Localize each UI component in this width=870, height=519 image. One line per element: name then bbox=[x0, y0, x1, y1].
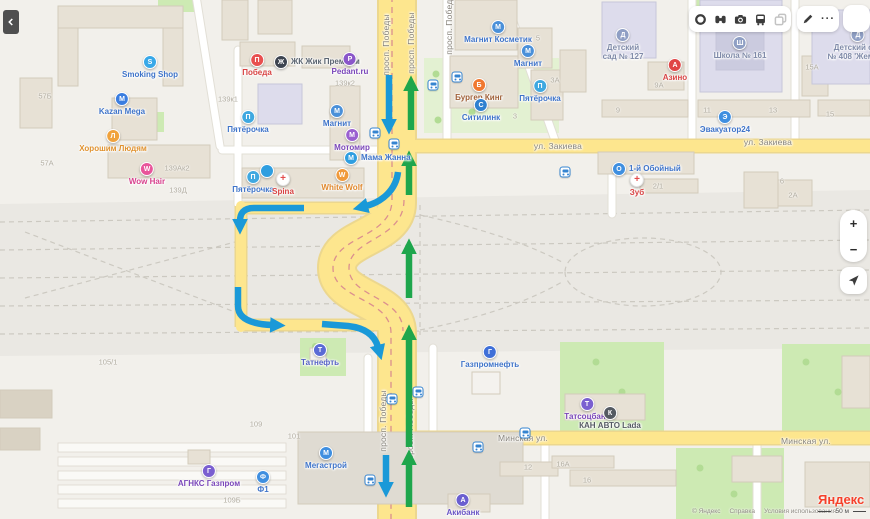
poi-icon: Т bbox=[313, 343, 327, 357]
poi-marker[interactable]: Г Газпромнефть bbox=[461, 345, 519, 369]
poi-marker[interactable]: М Магнит Косметик bbox=[464, 20, 532, 44]
camera-icon bbox=[734, 13, 747, 26]
poi-icon: Ф bbox=[256, 470, 270, 484]
street-label: ул. Закиева bbox=[744, 137, 792, 147]
tools-toolbar: ··· bbox=[797, 6, 839, 32]
poi-icon: А bbox=[456, 493, 470, 507]
poi-marker[interactable]: Ф Ф1 bbox=[256, 470, 270, 494]
poi-marker[interactable]: А Азино bbox=[663, 58, 687, 82]
map-canvas[interactable]: просп. Победыпросп. Победыпросп. Победып… bbox=[0, 0, 870, 519]
poi-label: Spina bbox=[272, 187, 294, 196]
poi-marker[interactable]: W Wow Hair bbox=[129, 162, 165, 186]
street-label: просп. Победы bbox=[444, 0, 454, 55]
poi-icon: М bbox=[344, 151, 358, 165]
poi-label: КАН АВТО Lada bbox=[579, 421, 641, 430]
poi-icon: Д bbox=[616, 28, 630, 42]
building-number: 3 bbox=[513, 112, 517, 121]
location-arrow-icon bbox=[847, 274, 860, 287]
building-number: 139Ак2 bbox=[165, 164, 190, 173]
building-number: 15А bbox=[805, 63, 818, 72]
scale-line-right bbox=[853, 511, 866, 512]
building-number: 13 bbox=[769, 106, 777, 115]
bus-stop-icon[interactable] bbox=[428, 80, 439, 91]
poi-icon: S bbox=[143, 55, 157, 69]
poi-marker[interactable]: Т Татнефть bbox=[301, 343, 339, 367]
poi-icon: Ш bbox=[733, 36, 747, 50]
ruler-button[interactable] bbox=[799, 8, 817, 30]
poi-marker[interactable]: К КАН АВТО Lada bbox=[579, 406, 641, 430]
poi-label: Хорошим Людям bbox=[79, 144, 147, 153]
building-number: 5 bbox=[536, 34, 540, 43]
building-number: 139к2 bbox=[335, 79, 355, 88]
poi-icon: К bbox=[603, 406, 617, 420]
poi-label: White Wolf bbox=[321, 183, 362, 192]
poi-label: Победа bbox=[242, 68, 272, 77]
pencil-icon bbox=[802, 13, 814, 25]
poi-label: Азино bbox=[663, 73, 687, 82]
poi-icon: W bbox=[140, 162, 154, 176]
poi-marker[interactable]: М Мегастрой bbox=[305, 446, 347, 470]
poi-icon: С bbox=[474, 98, 488, 112]
poi-icon: М bbox=[319, 446, 333, 460]
map-layers-toolbar bbox=[689, 6, 791, 32]
poi-icon bbox=[260, 164, 274, 178]
poi-icon: П bbox=[246, 170, 260, 184]
building-number: 139к1 bbox=[218, 95, 238, 104]
poi-marker[interactable]: А Акибанк bbox=[447, 493, 480, 517]
building-number: 15 bbox=[826, 110, 834, 119]
attribution-bar: © Яндекс Справка Условия использования bbox=[692, 508, 836, 515]
poi-marker[interactable]: Э Эвакуатор24 bbox=[700, 110, 750, 134]
more-button[interactable]: ··· bbox=[819, 8, 837, 30]
building-number: 16 bbox=[583, 476, 591, 485]
zoom-controls: + − bbox=[840, 210, 867, 262]
poi-icon: Г bbox=[483, 345, 497, 359]
bus-icon bbox=[754, 13, 767, 26]
poi-label: АГНКС Газпром bbox=[178, 479, 240, 488]
poi-label: Ситилинк bbox=[462, 113, 500, 122]
street-label: просп. Победы bbox=[406, 12, 416, 73]
poi-label: Магнит bbox=[514, 59, 542, 68]
building-number: 57Б bbox=[38, 92, 51, 101]
bus-stop-icon[interactable] bbox=[473, 442, 484, 453]
poi-label: Пятёрочка bbox=[227, 125, 268, 134]
building-number: 2/1 bbox=[653, 182, 663, 191]
poi-marker[interactable]: P Pedant.ru bbox=[332, 52, 369, 76]
poi-marker[interactable]: Л Хорошим Людям bbox=[79, 129, 147, 153]
poi-marker[interactable]: Ш Школа № 161 bbox=[714, 36, 767, 60]
zoom-out-button[interactable]: − bbox=[840, 236, 867, 262]
poi-marker[interactable]: M Kazan Mega bbox=[99, 92, 145, 116]
building-number: 16А bbox=[556, 460, 569, 469]
copyright-text: © Яндекс bbox=[692, 508, 720, 515]
collapse-panel-button[interactable] bbox=[3, 10, 19, 34]
poi-icon: А bbox=[668, 58, 682, 72]
poi-icon: + bbox=[276, 172, 290, 186]
bus-stop-icon[interactable] bbox=[389, 139, 400, 150]
poi-label: Pedant.ru bbox=[332, 67, 369, 76]
poi-label: Мама Жанна bbox=[361, 153, 411, 162]
poi-label: Эвакуатор24 bbox=[700, 125, 750, 134]
panoramas-button[interactable] bbox=[711, 8, 729, 30]
poi-marker[interactable]: W White Wolf bbox=[321, 168, 362, 192]
poi-label: Детский сад № 127 bbox=[603, 43, 644, 61]
building-number: 9 bbox=[616, 106, 620, 115]
poi-label: Пятёрочка bbox=[232, 185, 273, 194]
street-label: просп. Победы bbox=[405, 398, 415, 459]
poi-icon: М bbox=[345, 128, 359, 142]
poi-label: Детский сад № 408 'Жемчуж bbox=[828, 43, 870, 61]
poi-marker[interactable]: П Пятёрочка bbox=[519, 79, 560, 103]
poi-marker[interactable]: М Магнит bbox=[323, 104, 351, 128]
poi-icon: Б bbox=[472, 78, 486, 92]
poi-label: Smoking Shop bbox=[122, 70, 178, 79]
layers-icon bbox=[774, 13, 787, 26]
poi-label: Татнефть bbox=[301, 358, 339, 367]
poi-marker[interactable]: Г АГНКС Газпром bbox=[178, 464, 240, 488]
bus-stop-icon[interactable] bbox=[413, 387, 424, 398]
locate-me-button[interactable] bbox=[840, 267, 867, 294]
building-number: 139Д bbox=[169, 186, 187, 195]
poi-marker[interactable] bbox=[260, 164, 274, 179]
street-label: ул. Закиева bbox=[534, 141, 582, 151]
poi-label: Зуб bbox=[630, 188, 644, 197]
profile-button[interactable] bbox=[843, 5, 870, 32]
street-label: просп. Победы bbox=[381, 14, 391, 75]
photos-button[interactable] bbox=[731, 8, 749, 30]
bus-stop-icon[interactable] bbox=[560, 167, 571, 178]
more-icon: ··· bbox=[821, 13, 835, 25]
layers-button[interactable] bbox=[771, 8, 789, 30]
bus-stop-icon[interactable] bbox=[365, 475, 376, 486]
transport-button[interactable] bbox=[751, 8, 769, 30]
poi-marker[interactable]: М Мотомир bbox=[334, 128, 370, 152]
building-number: 109 bbox=[250, 420, 263, 429]
poi-icon: П bbox=[241, 110, 255, 124]
bus-stop-icon[interactable] bbox=[520, 428, 531, 439]
building-number: 105/1 bbox=[99, 358, 118, 367]
poi-marker[interactable]: Д Детский сад № 408 'Жемчуж bbox=[828, 28, 870, 61]
poi-label: Wow Hair bbox=[129, 177, 165, 186]
poi-icon: М bbox=[330, 104, 344, 118]
street-label: Минская ул. bbox=[781, 436, 831, 446]
poi-icon: Ж bbox=[274, 55, 288, 69]
building-number: 2А bbox=[788, 191, 797, 200]
building-number: 12 bbox=[524, 463, 532, 472]
poi-label: Газпромнефть bbox=[461, 360, 519, 369]
poi-icon: Л bbox=[106, 129, 120, 143]
poi-label: Акибанк bbox=[447, 508, 480, 517]
scale-line-left bbox=[818, 511, 831, 512]
poi-label: Пятёрочка bbox=[519, 94, 560, 103]
poi-marker[interactable]: П Победа bbox=[242, 53, 272, 77]
yandex-logo[interactable]: Яндекс bbox=[818, 492, 864, 507]
poi-icon: П bbox=[533, 79, 547, 93]
poi-icon: W bbox=[335, 168, 349, 182]
panoramas-icon bbox=[714, 13, 727, 26]
poi-icon: M bbox=[115, 92, 129, 106]
poi-label: Магнит bbox=[323, 119, 351, 128]
help-link[interactable]: Справка bbox=[729, 508, 755, 515]
chevron-left-icon bbox=[5, 16, 17, 28]
building-number: 6 bbox=[780, 177, 784, 186]
poi-marker[interactable]: О 1-й Обойный bbox=[612, 162, 681, 176]
poi-label: Школа № 161 bbox=[714, 51, 767, 60]
poi-label: Магнит Косметик bbox=[464, 35, 532, 44]
bus-stop-icon[interactable] bbox=[370, 128, 381, 139]
poi-marker[interactable]: М Магнит bbox=[514, 44, 542, 68]
poi-label: Мегастрой bbox=[305, 461, 347, 470]
traffic-button[interactable] bbox=[691, 8, 709, 30]
poi-icon: + bbox=[630, 173, 644, 187]
building-number: 101 bbox=[288, 432, 301, 441]
zoom-in-button[interactable]: + bbox=[840, 210, 867, 236]
poi-icon: П bbox=[250, 53, 264, 67]
building-number: 57А bbox=[40, 159, 53, 168]
building-number: 109Б bbox=[223, 496, 240, 505]
poi-marker[interactable]: М Мама Жанна bbox=[344, 151, 411, 165]
bus-stop-icon[interactable] bbox=[387, 394, 398, 405]
poi-label: Ф1 bbox=[257, 485, 268, 494]
poi-marker[interactable]: Д Детский сад № 127 bbox=[603, 28, 644, 61]
poi-icon: Г bbox=[202, 464, 216, 478]
poi-marker[interactable]: П Пятёрочка bbox=[227, 110, 268, 134]
scale-bar: 50 м bbox=[818, 508, 866, 515]
poi-icon: М bbox=[491, 20, 505, 34]
poi-marker[interactable]: + Зуб bbox=[630, 173, 644, 197]
scale-value: 50 м bbox=[835, 508, 849, 515]
poi-icon: P bbox=[343, 52, 357, 66]
poi-marker[interactable]: S Smoking Shop bbox=[122, 55, 178, 79]
poi-icon: М bbox=[521, 44, 535, 58]
traffic-ring-icon bbox=[694, 13, 707, 26]
poi-icon: О bbox=[612, 162, 626, 176]
poi-label: Kazan Mega bbox=[99, 107, 145, 116]
poi-marker[interactable]: С Ситилинк bbox=[462, 98, 500, 122]
poi-marker[interactable]: + Spina bbox=[272, 172, 294, 196]
poi-icon: Э bbox=[718, 110, 732, 124]
